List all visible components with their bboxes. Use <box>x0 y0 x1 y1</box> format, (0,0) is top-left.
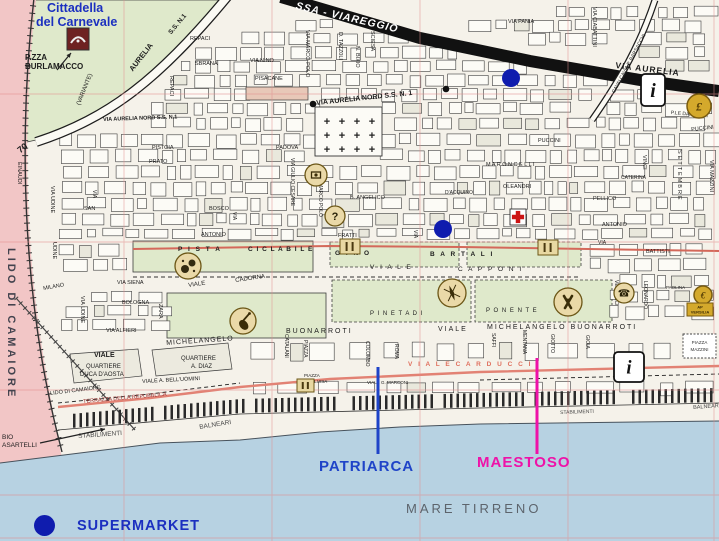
svg-text:+: + <box>324 116 330 128</box>
svg-text:☎: ☎ <box>618 289 630 300</box>
currency-icon: £ <box>687 94 711 118</box>
supermarket-legend-dot <box>34 515 55 536</box>
svg-text:+: + <box>324 144 330 156</box>
svg-text:£: £ <box>695 100 703 114</box>
svg-text:€: € <box>700 290 706 300</box>
svg-text:MAZZINI: MAZZINI <box>691 347 709 352</box>
road-dot-2 <box>443 86 450 93</box>
supermarket-legend: SUPERMARKET <box>34 515 200 536</box>
tourist-info-icon[interactable]: i <box>641 74 665 106</box>
svg-text:?: ? <box>332 211 339 223</box>
supermarket-marker[interactable] <box>502 69 520 87</box>
hospital-icon <box>510 209 526 225</box>
svg-text:+: + <box>369 130 375 142</box>
cemetery-icon: ++++++++++++ <box>315 107 382 156</box>
casartelli-arrow <box>40 428 105 443</box>
supermarket-marker-2[interactable] <box>434 220 452 238</box>
sport-icon <box>554 288 582 316</box>
route-marker-2 <box>538 240 558 255</box>
svg-text:PIAZZA: PIAZZA <box>692 340 708 345</box>
route-marker-3 <box>297 379 314 392</box>
svg-text:+: + <box>354 116 360 128</box>
svg-text:+: + <box>369 116 375 128</box>
svg-text:i: i <box>626 358 632 379</box>
svg-text:+: + <box>339 116 345 128</box>
svg-text:+: + <box>354 144 360 156</box>
piazza-mazzini-box: PIAZZAMAZZINI <box>683 334 716 358</box>
road-dot <box>310 101 317 108</box>
patriarca-callout-label[interactable]: PATRIARCA <box>319 459 414 476</box>
help-icon: ? <box>325 206 345 226</box>
map-canvas[interactable]: P.ZZABURLAMACCOS.S. N.1AURELIA(VARIANTE)… <box>0 0 719 541</box>
music-icon <box>230 308 256 334</box>
compass-icon <box>438 279 466 307</box>
svg-text:+: + <box>339 130 345 142</box>
burlamacco-arrow <box>57 53 71 70</box>
svg-text:i: i <box>650 80 656 102</box>
currency-icon-2: € <box>694 286 712 304</box>
svg-text:+: + <box>369 144 375 156</box>
svg-text:+: + <box>324 130 330 142</box>
svg-text:+: + <box>339 144 345 156</box>
sea-name-label: MARE TIRRENO <box>406 501 541 516</box>
carnevale-mask-icon <box>67 28 89 50</box>
svg-text:VERSILIA: VERSILIA <box>691 310 710 315</box>
route-marker <box>340 239 360 254</box>
sight-icon <box>305 164 327 186</box>
maestoso-callout-label[interactable]: MAESTOSO <box>477 455 571 472</box>
bocce-icon <box>175 253 201 279</box>
telephone-icon: ☎ <box>614 283 634 303</box>
supermarket-legend-label: SUPERMARKET <box>77 518 200 534</box>
tourist-info-icon-2[interactable]: i <box>614 352 644 382</box>
cittadella-del-carnevale-label: Cittadella del Carnevale <box>47 2 117 30</box>
svg-text:+: + <box>354 130 360 142</box>
ap-versilia-badge: APVERSILIA <box>687 303 713 316</box>
